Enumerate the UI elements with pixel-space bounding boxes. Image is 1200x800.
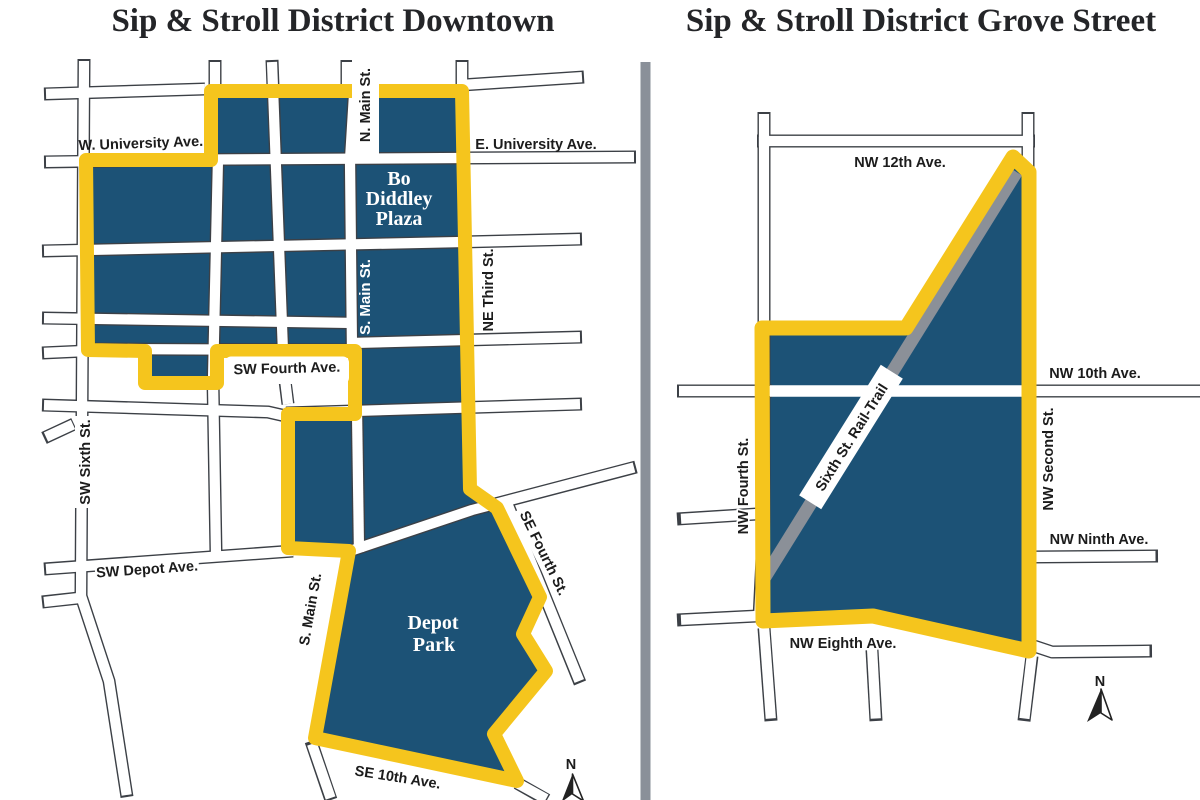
svg-text:NW 10th Ave.: NW 10th Ave. [1049,366,1141,382]
svg-text:SW Sixth St.: SW Sixth St. [78,419,94,504]
svg-text:N: N [566,757,576,773]
svg-text:S. Main St.: S. Main St. [357,259,374,335]
svg-text:Bo: Bo [387,168,410,190]
svg-text:NW Second St.: NW Second St. [1041,407,1057,510]
svg-text:NE Third St.: NE Third St. [481,249,497,332]
svg-text:N. Main St.: N. Main St. [358,68,374,142]
svg-text:Plaza: Plaza [376,208,423,230]
svg-text:NW 12th Ave.: NW 12th Ave. [854,155,946,171]
svg-text:Park: Park [413,634,456,656]
svg-text:SW Fourth Ave.: SW Fourth Ave. [233,360,340,379]
svg-text:NW Eighth Ave.: NW Eighth Ave. [790,636,897,652]
svg-text:N: N [1095,674,1105,690]
svg-text:NW Fourth St.: NW Fourth St. [736,438,752,535]
svg-text:Diddley: Diddley [366,188,433,210]
svg-text:Sip & Stroll District Downtown: Sip & Stroll District Downtown [111,3,554,39]
svg-text:Depot: Depot [407,612,458,634]
svg-text:Sip & Stroll District Grove St: Sip & Stroll District Grove Street [686,3,1156,39]
svg-text:NW Ninth Ave.: NW Ninth Ave. [1050,532,1149,548]
svg-text:E. University Ave.: E. University Ave. [475,137,596,153]
